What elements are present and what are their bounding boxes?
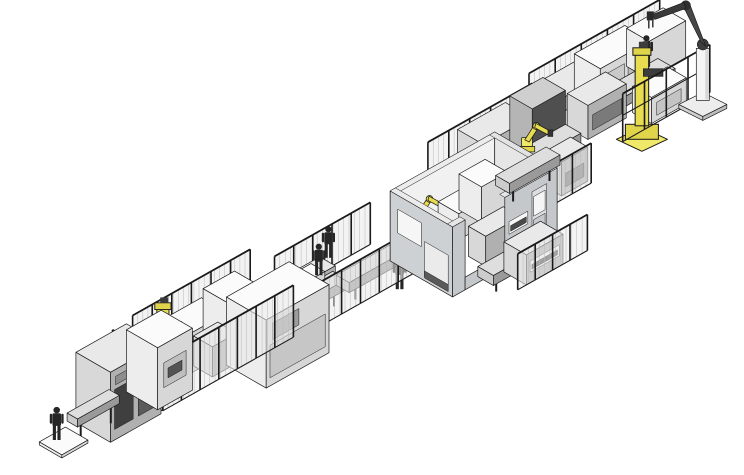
production-line-svg [0,0,744,475]
production-line-illustration [0,0,744,475]
cabinet-far-left-2 [126,310,192,410]
